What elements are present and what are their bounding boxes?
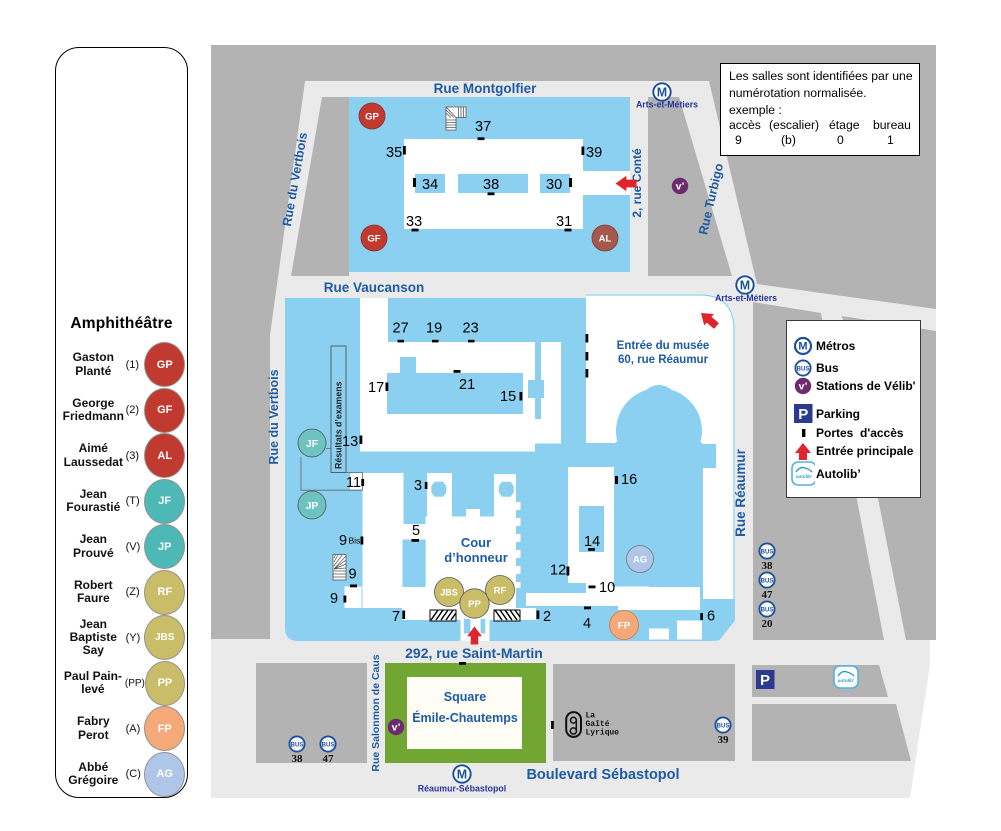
svg-text:39: 39 <box>586 145 602 161</box>
svg-text:5: 5 <box>412 523 420 539</box>
svg-text:Entrée du musée: Entrée du musée <box>617 340 710 352</box>
svg-text:10: 10 <box>599 580 615 596</box>
svg-text:9: 9 <box>339 533 347 549</box>
svg-text:autolib': autolib' <box>796 474 812 479</box>
svg-text:6: 6 <box>707 609 715 625</box>
svg-text:23: 23 <box>463 321 479 337</box>
svg-text:FP: FP <box>618 621 631 632</box>
svg-text:Square: Square <box>444 690 486 704</box>
svg-text:GF: GF <box>367 234 380 245</box>
svg-text:Bis: Bis <box>349 536 361 546</box>
svg-text:P: P <box>760 672 770 689</box>
svg-text:7: 7 <box>392 609 400 625</box>
svg-text:17: 17 <box>368 380 384 396</box>
svg-text:35: 35 <box>386 145 402 161</box>
svg-text:Boulevard Sébastopol: Boulevard Sébastopol <box>526 767 679 783</box>
svg-text:4: 4 <box>583 616 591 632</box>
svg-text:2: 2 <box>543 609 551 625</box>
svg-text:13: 13 <box>342 434 358 450</box>
svg-text:JBS: JBS <box>440 588 458 598</box>
svg-text:15: 15 <box>500 389 516 405</box>
svg-text:Résultats d’examens: Résultats d’examens <box>334 381 344 469</box>
svg-text:GP: GP <box>365 112 379 123</box>
svg-text:Émile-Chautemps: Émile-Chautemps <box>412 710 518 725</box>
svg-text:Lyrique: Lyrique <box>586 729 620 738</box>
svg-text:M: M <box>798 341 807 353</box>
svg-text:Rue Montgolfier: Rue Montgolfier <box>434 81 537 96</box>
svg-text:Rue Salonmon de Caus: Rue Salonmon de Caus <box>370 654 382 771</box>
svg-text:292, rue Saint-Martin: 292, rue Saint-Martin <box>405 645 543 661</box>
svg-text:12: 12 <box>550 563 566 579</box>
svg-text:Arts-et-Métiers: Arts-et-Métiers <box>636 100 698 110</box>
svg-text:60, rue Réaumur: 60, rue Réaumur <box>618 354 709 366</box>
svg-text:d’honneur: d’honneur <box>444 550 508 565</box>
svg-text:9: 9 <box>349 567 357 583</box>
svg-text:BUS: BUS <box>797 366 810 372</box>
svg-text:AG: AG <box>633 555 647 566</box>
svg-text:34: 34 <box>422 177 438 193</box>
svg-text:20: 20 <box>762 618 774 630</box>
svg-text:31: 31 <box>556 214 572 230</box>
svg-text:47: 47 <box>762 589 774 601</box>
svg-text:JP: JP <box>306 500 319 512</box>
svg-text:37: 37 <box>475 119 491 135</box>
svg-text:3: 3 <box>414 478 422 494</box>
svg-text:11: 11 <box>346 475 361 491</box>
svg-text:RF: RF <box>494 586 507 597</box>
svg-text:JF: JF <box>306 438 319 450</box>
svg-text:Rue Réaumur: Rue Réaumur <box>733 448 748 537</box>
svg-text:38: 38 <box>483 177 499 193</box>
svg-text:v’: v’ <box>799 381 808 393</box>
svg-text:9: 9 <box>330 591 338 607</box>
svg-text:PP: PP <box>468 599 481 610</box>
svg-text:AL: AL <box>599 234 612 245</box>
svg-text:16: 16 <box>621 472 637 488</box>
svg-text:14: 14 <box>584 534 600 550</box>
svg-text:Réaumur-Sébastopol: Réaumur-Sébastopol <box>418 784 506 794</box>
svg-text:39: 39 <box>718 734 730 746</box>
svg-text:30: 30 <box>546 177 562 193</box>
svg-text:47: 47 <box>323 753 335 765</box>
svg-text:Cour: Cour <box>461 535 491 550</box>
svg-text:19: 19 <box>426 321 442 337</box>
svg-text:38: 38 <box>292 753 304 765</box>
svg-text:21: 21 <box>459 377 475 393</box>
svg-text:38: 38 <box>762 560 774 572</box>
svg-text:Arts-et-Métiers: Arts-et-Métiers <box>715 293 777 303</box>
svg-text:Rue du Vertbois: Rue du Vertbois <box>267 369 281 464</box>
svg-text:33: 33 <box>406 214 422 230</box>
svg-text:27: 27 <box>393 321 409 337</box>
svg-text:Rue Vaucanson: Rue Vaucanson <box>324 280 425 295</box>
